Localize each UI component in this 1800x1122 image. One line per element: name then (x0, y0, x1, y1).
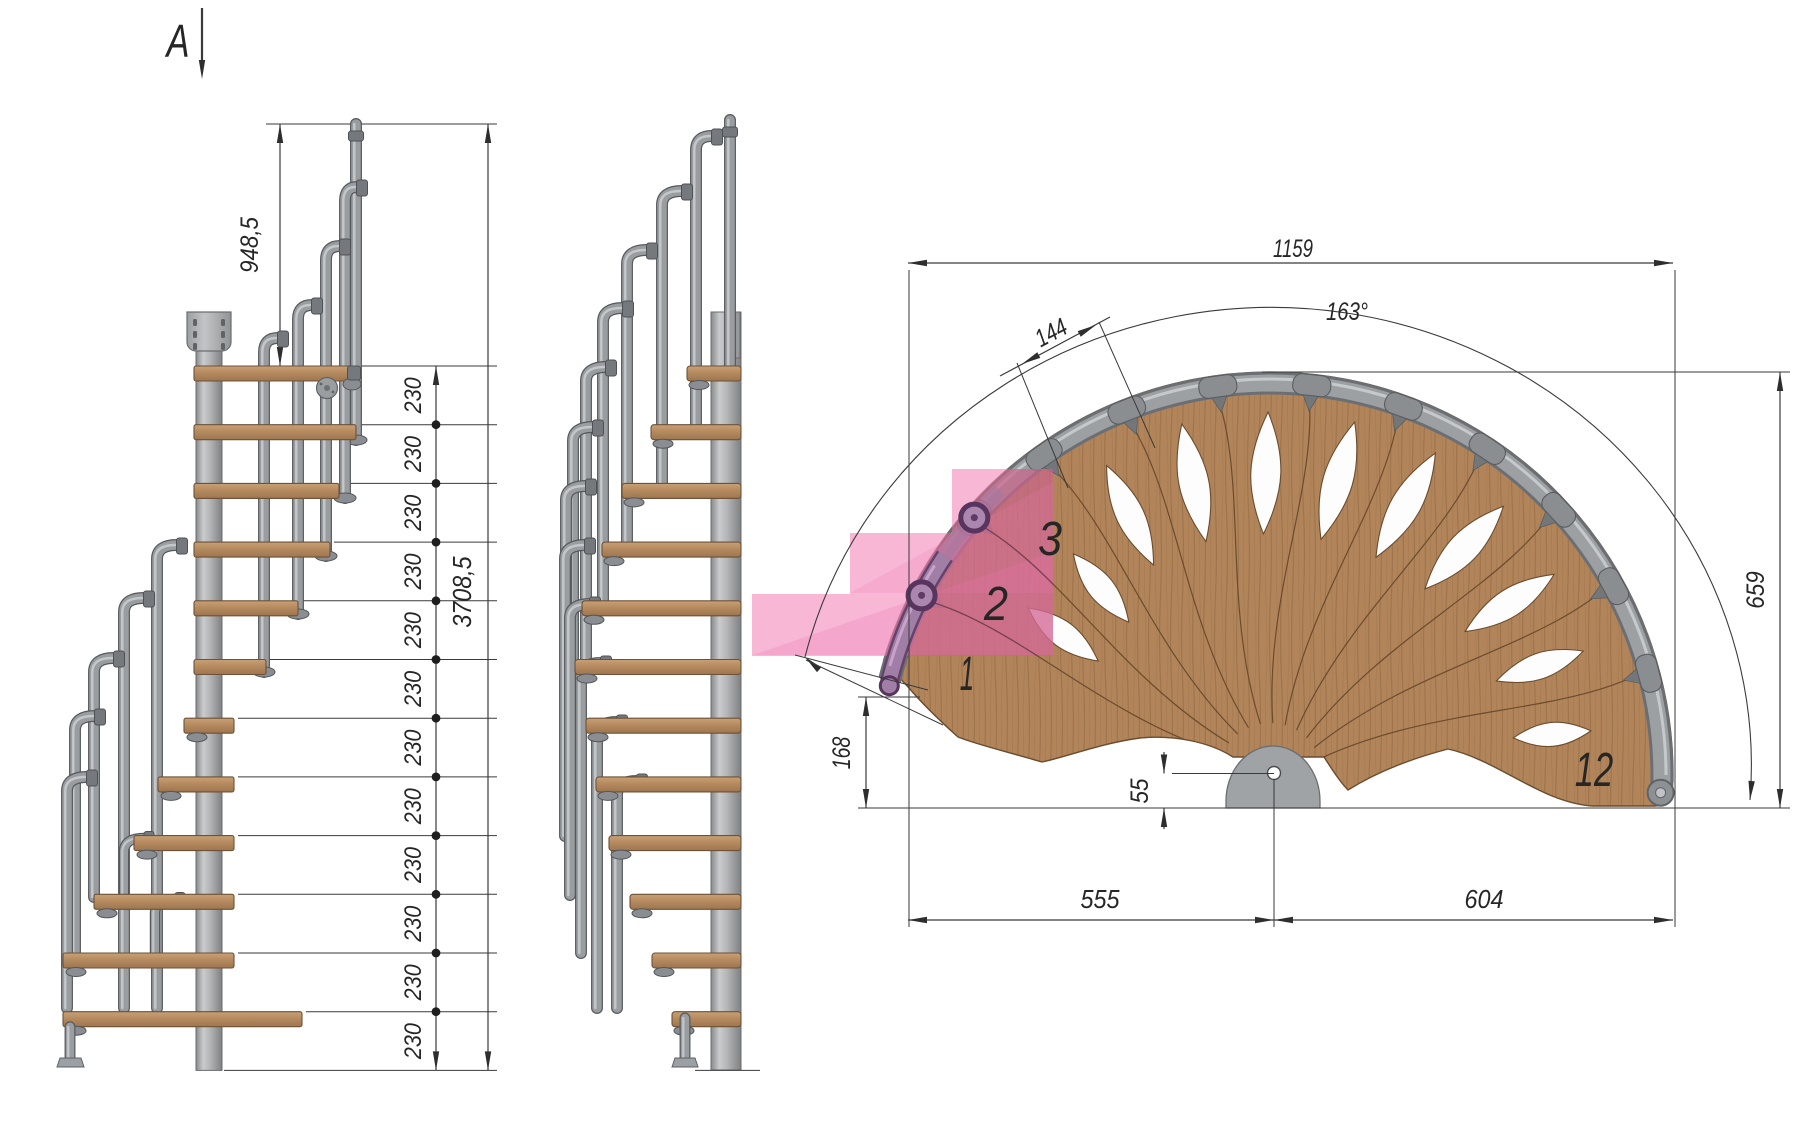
svg-text:230: 230 (400, 729, 427, 766)
svg-text:1159: 1159 (1273, 235, 1313, 263)
svg-text:3708,5: 3708,5 (447, 556, 477, 628)
svg-text:55: 55 (1126, 778, 1154, 803)
svg-text:A: A (164, 15, 189, 67)
svg-text:1: 1 (960, 648, 974, 701)
svg-text:230: 230 (400, 846, 427, 883)
svg-text:163°: 163° (1326, 298, 1368, 326)
svg-text:168: 168 (828, 737, 856, 770)
svg-text:230: 230 (400, 494, 427, 531)
svg-text:230: 230 (400, 964, 427, 1001)
svg-text:2: 2 (983, 578, 1008, 631)
svg-text:230: 230 (400, 435, 427, 472)
svg-text:230: 230 (400, 553, 427, 590)
svg-text:555: 555 (1081, 884, 1120, 914)
svg-text:3: 3 (1038, 513, 1062, 566)
svg-text:604: 604 (1465, 884, 1504, 914)
svg-text:948,5: 948,5 (236, 217, 264, 273)
svg-text:230: 230 (400, 788, 427, 825)
svg-text:230: 230 (400, 377, 427, 414)
svg-text:230: 230 (400, 1023, 427, 1060)
svg-text:230: 230 (400, 905, 427, 942)
svg-text:659: 659 (1742, 571, 1770, 609)
svg-text:12: 12 (1575, 744, 1613, 797)
svg-text:230: 230 (400, 612, 427, 649)
svg-text:230: 230 (400, 670, 427, 707)
